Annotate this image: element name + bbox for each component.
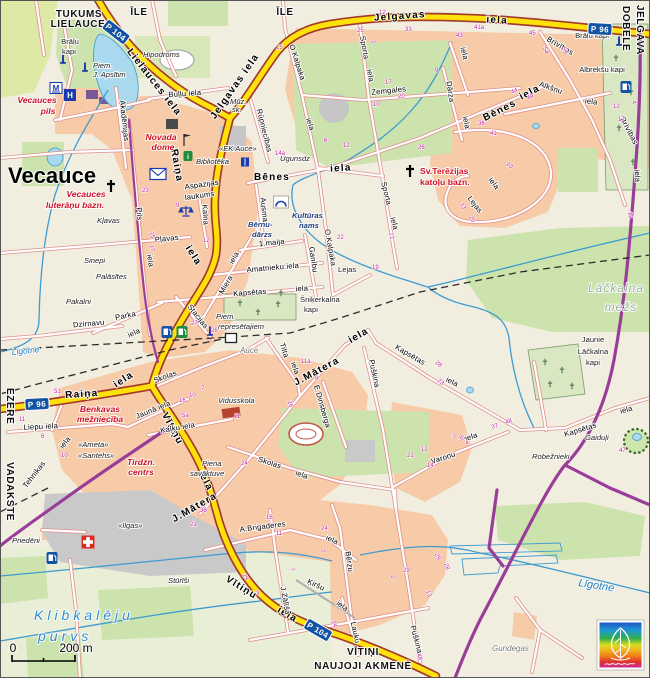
castle-building: [86, 90, 98, 99]
map-label: Benkavas: [80, 404, 120, 414]
map-label: NAUJOJI AKMENĖ: [314, 659, 412, 672]
map-label: centrs: [128, 467, 154, 477]
house-number: 17: [618, 117, 625, 123]
house-number: 24: [321, 526, 328, 532]
map-label: Gaiduļi: [585, 433, 609, 442]
info-icon: i: [184, 151, 193, 161]
house-number: 36: [478, 121, 485, 127]
map-label: represētajiem: [218, 322, 264, 331]
map-label: Hipodroms: [143, 50, 180, 59]
map-label: Lāčkalna: [588, 281, 644, 295]
map-label: «Santehs»: [78, 451, 114, 460]
house-number: 36: [200, 508, 207, 514]
map-label: Kļavas: [97, 216, 120, 225]
house-number: 27: [191, 321, 198, 327]
map-label: iela: [585, 96, 599, 106]
map-label: Palāsītes: [96, 272, 127, 281]
map-label: «Ameta»: [78, 440, 108, 449]
builtup-area: [512, 612, 537, 640]
house-number: 45: [529, 31, 536, 37]
fuel-station-icon: [162, 326, 173, 338]
house-number: 29: [403, 568, 410, 574]
house-number: 43: [456, 33, 463, 39]
map-label: LIELAUCE: [51, 19, 106, 30]
map-label: Brāļu: [61, 37, 79, 46]
museum-icon: M: [50, 83, 62, 94]
road-shield: P 96: [588, 22, 613, 35]
jana-seta-logo: Jāņa sēta: [597, 620, 644, 670]
map-label: Piem.: [216, 312, 235, 321]
map-geometry: [83, 540, 93, 544]
map-label: Kultūras: [292, 211, 323, 220]
map-label: Raiņa: [65, 388, 99, 401]
map-label: dome: [152, 142, 175, 152]
map-label: Priedēni: [12, 536, 40, 545]
map-label: Lejas: [338, 265, 356, 274]
house-number: 5a: [182, 413, 189, 419]
map-label: mežniecība: [77, 414, 124, 424]
fuel-station-icon: [177, 326, 188, 338]
hillfort-icon: [624, 429, 648, 453]
map-geometry: [226, 334, 237, 343]
house-number: 11: [19, 417, 26, 423]
map-label: «EK Auce»: [219, 144, 257, 153]
map-label: iela: [486, 14, 508, 26]
map-label: Lāčkalna: [578, 347, 609, 356]
map-label: EZERE: [4, 388, 15, 424]
house-number: 12: [203, 238, 210, 244]
house-number: 14a: [275, 151, 286, 157]
house-number: 41a: [474, 25, 485, 31]
library-icon: [241, 158, 249, 167]
map-label: Sinepi: [84, 256, 105, 265]
house-number: 11a: [301, 359, 311, 365]
map-label: Tirdzn.: [127, 457, 155, 467]
map-label: Klibkalēju: [34, 607, 134, 623]
map-label: savāktuve: [190, 469, 224, 478]
house-number: 16: [266, 515, 273, 521]
map-label: Piena: [202, 459, 221, 468]
map-label: Gundegas: [492, 644, 529, 653]
map-label: Robežnieki: [532, 452, 570, 461]
map-label: kapi: [304, 305, 318, 314]
map-label: nams: [299, 221, 319, 230]
hotel-icon: H: [64, 89, 76, 101]
house-number: 17: [385, 80, 392, 86]
fuel-station-icon: [47, 552, 58, 564]
industrial-area: [345, 440, 375, 462]
map-label: ĪLE: [275, 6, 293, 18]
map-label: luterāņu bazn.: [46, 200, 104, 210]
house-number: 19: [372, 265, 379, 271]
house-number: 26: [418, 145, 425, 151]
house-number: 12: [421, 447, 428, 453]
map-label: kapi: [586, 358, 600, 367]
fuel-station-icon: [621, 81, 632, 93]
railway-station-icon: [226, 334, 237, 343]
map-label: iela: [295, 284, 309, 294]
road-shield: P 96: [25, 397, 50, 410]
map-label: Vecauces: [66, 189, 106, 199]
house-number: 10: [189, 393, 196, 399]
map-label: Vidusskola: [218, 396, 255, 405]
green-area: [558, 148, 598, 192]
map-label: Sv.Terēzijas: [420, 166, 469, 176]
hospital-icon: [82, 536, 95, 549]
map-label: Šniķerkalna: [300, 295, 340, 304]
house-number: 11: [234, 414, 241, 420]
map-canvas: M H i TUKUMSLIELAUCEĪLEĪLEDOBELEJELGAVAE…: [0, 0, 650, 678]
house-number: 51: [54, 389, 61, 395]
house-number: 16: [179, 398, 186, 404]
map-geometry: H: [67, 91, 73, 100]
house-number: 23: [142, 188, 149, 194]
house-number: 20: [398, 94, 405, 100]
map-label: Jaunie: [582, 335, 604, 344]
building: [166, 119, 178, 129]
pond: [533, 124, 540, 129]
map-label: mežs: [605, 300, 638, 314]
house-number: 15: [276, 45, 283, 51]
house-number: 11: [276, 531, 283, 537]
map-label: dārzs: [252, 230, 272, 239]
post-office-icon: [150, 169, 166, 180]
house-number: 24: [241, 461, 248, 467]
house-number: 47: [619, 448, 626, 454]
map-label: Novada: [145, 132, 176, 142]
map-geometry: [633, 434, 642, 441]
map-label: JELGAVA: [634, 5, 645, 55]
map-geometry: [624, 429, 648, 453]
map-label: katoļu bazn.: [420, 177, 470, 187]
landuse-layer: [0, 0, 650, 678]
city-map-vecauce: M H i TUKUMSLIELAUCEĪLEĪLEDOBELEJELGAVAE…: [0, 0, 650, 678]
house-number: 25: [357, 28, 364, 34]
map-label: ĪLE: [129, 6, 147, 18]
map-label: iela: [330, 162, 352, 174]
park-area: [292, 40, 452, 168]
scale-zero: 0: [10, 641, 17, 655]
house-number: 12: [343, 143, 350, 149]
map-label: Vecauces: [17, 95, 57, 105]
house-number: 12: [613, 104, 620, 110]
scale-distance: 200 m: [59, 641, 92, 655]
stadium-track: [289, 423, 323, 445]
map-label: Pils: [135, 207, 145, 221]
map-label: iela: [633, 169, 643, 183]
map-label: Albrekšu kapi: [579, 65, 625, 74]
road-shield-number: P 96: [591, 25, 610, 35]
map-label: Bērnu-: [248, 220, 273, 229]
culture-house-icon: [274, 196, 289, 208]
house-number: 41: [490, 131, 497, 137]
map-label: Pakalni: [66, 297, 91, 306]
house-number: 14: [427, 463, 434, 469]
map-label: Liepu iela: [23, 421, 59, 432]
map-label: Piem.: [93, 61, 112, 70]
house-number: 21: [407, 453, 414, 459]
map-geometry: i: [187, 154, 189, 161]
road-shield-number: P 96: [28, 400, 47, 410]
green-area: [168, 0, 228, 26]
map-label: Stūrīši: [168, 576, 189, 585]
house-number: 26: [211, 328, 218, 334]
green-area: [0, 556, 48, 604]
map-label: Vecauce: [8, 163, 96, 188]
map-label: VĪTIŅI: [347, 646, 379, 658]
map-label: «Ilgas»: [118, 521, 143, 530]
map-label: VADAKSTE: [4, 462, 15, 521]
map-label: Bēnes: [254, 172, 290, 183]
house-number: 10: [61, 453, 68, 459]
map-label: pils: [40, 106, 56, 116]
house-number: 33: [405, 27, 412, 33]
map-label: DOBELE: [620, 6, 631, 51]
map-label: sk.: [232, 105, 242, 114]
map-label: J. Apsītim: [92, 70, 126, 79]
house-number: 10: [373, 102, 380, 108]
house-number: 21: [190, 522, 197, 528]
map-label: kapi: [62, 47, 76, 56]
map-label: iela: [145, 254, 156, 268]
pond: [467, 387, 474, 393]
house-number: 12: [379, 10, 386, 16]
map-label: Bibliotēka: [196, 157, 229, 166]
map-label: Kalna: [200, 204, 210, 226]
map-label: Auce: [239, 346, 259, 355]
house-number: 22: [337, 235, 344, 241]
